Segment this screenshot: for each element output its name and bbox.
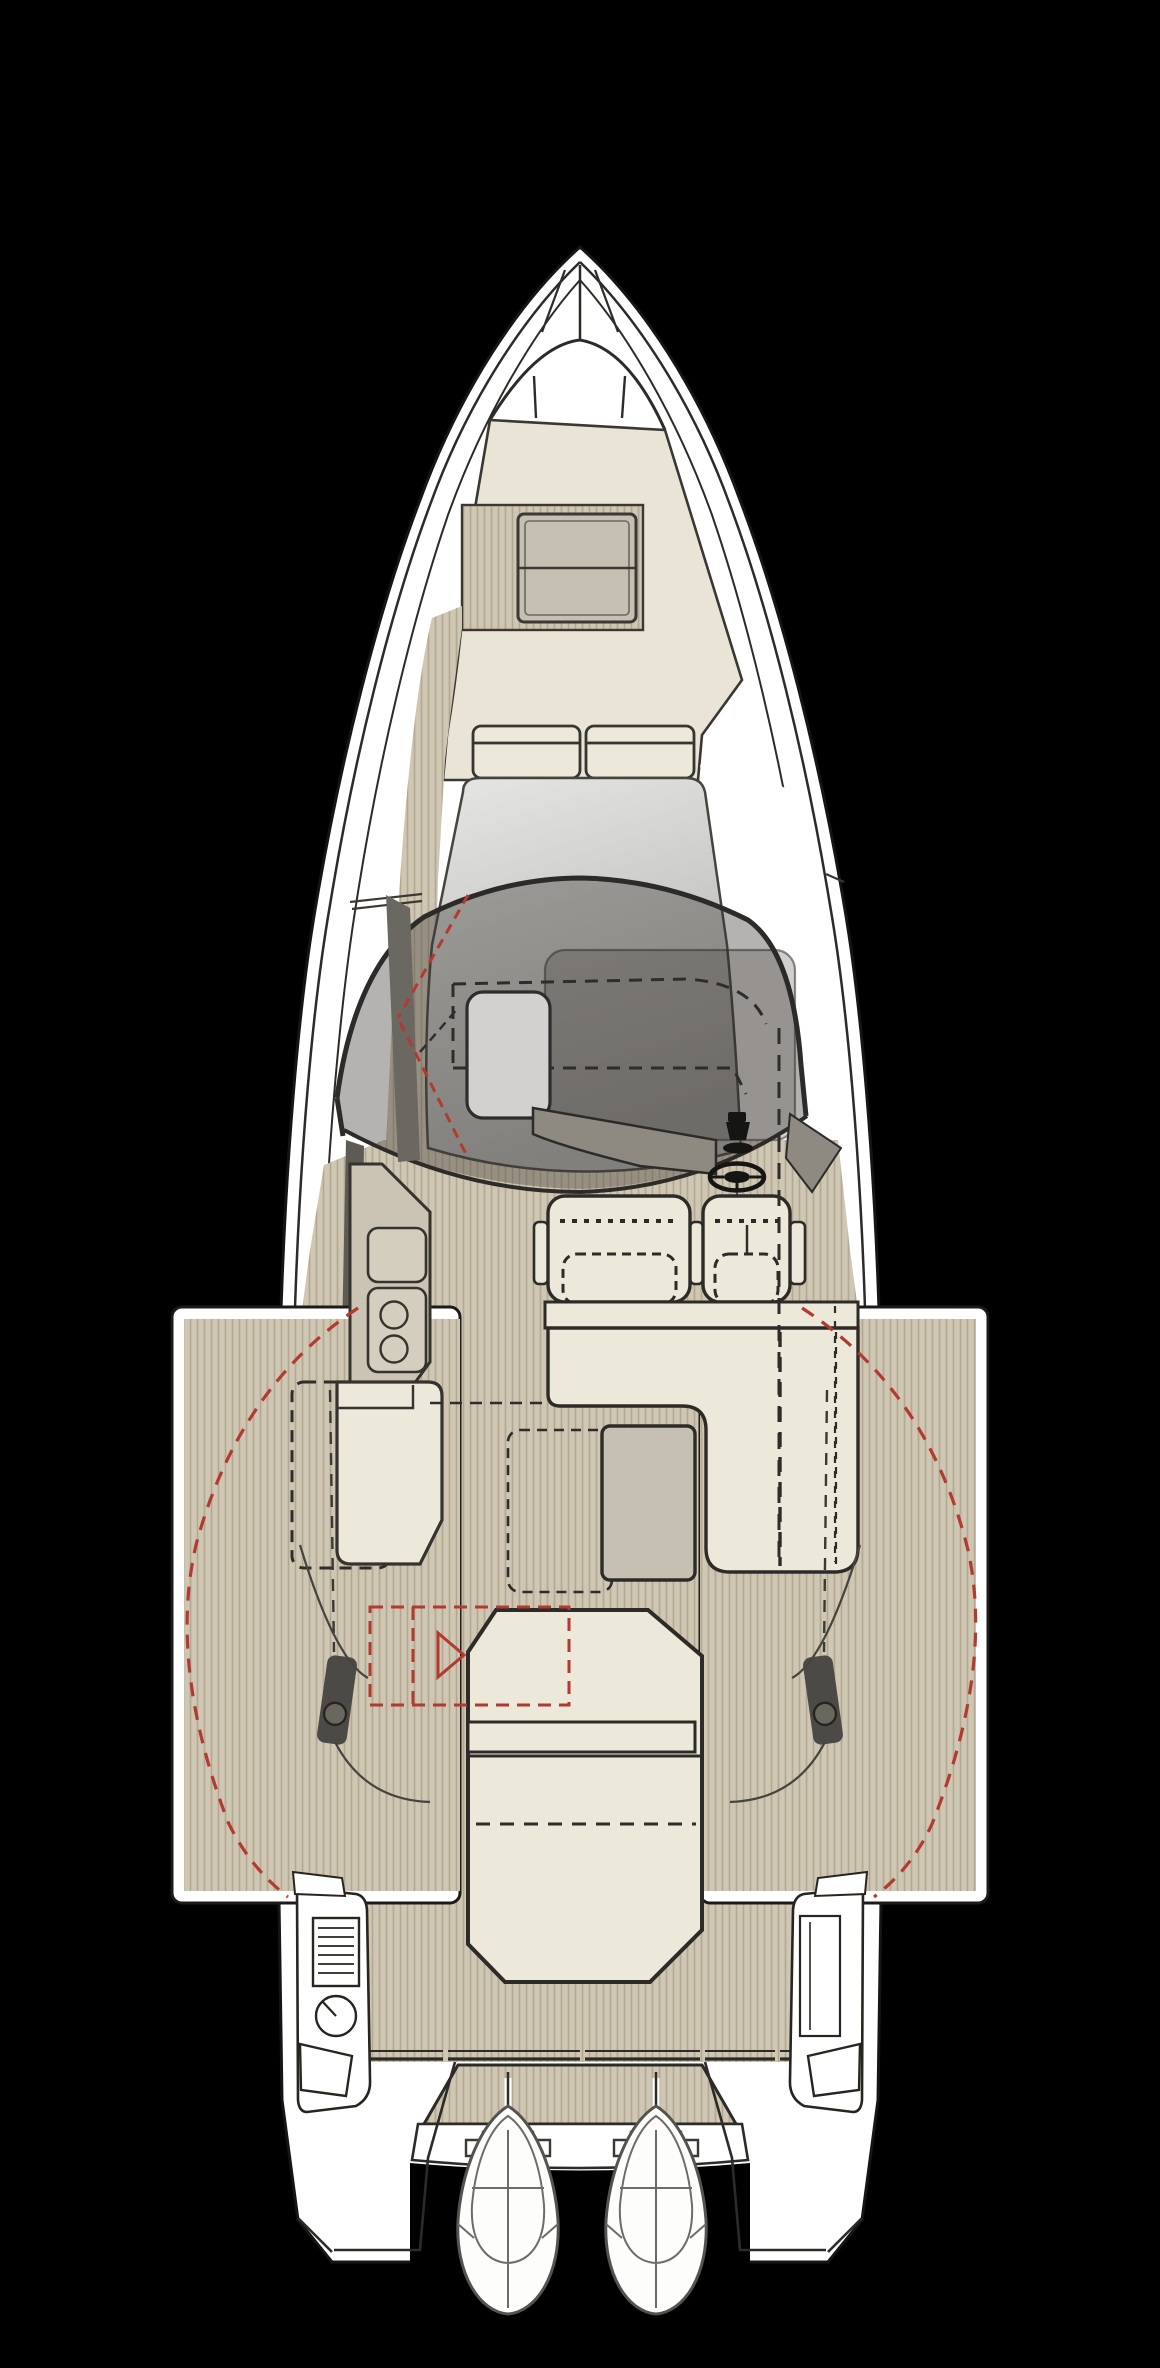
stern-console-port xyxy=(293,1872,370,2112)
helm-seats xyxy=(534,1196,805,1304)
helm-seat-armrest xyxy=(534,1222,548,1284)
companionway-door-pane xyxy=(467,992,550,1118)
swim-platform-center xyxy=(424,2065,736,2124)
aft-sunbed-group xyxy=(468,1610,702,1982)
cockpit-table xyxy=(602,1426,695,1580)
boat-deck-plan xyxy=(0,0,1160,2368)
helm-bench-seat xyxy=(548,1196,690,1302)
galley-stove xyxy=(368,1288,426,1372)
sunbed-backrest-bar xyxy=(468,1722,695,1752)
port-bench-seat xyxy=(337,1382,442,1564)
helm-seat-armrest xyxy=(690,1222,703,1284)
galley-sink xyxy=(368,1228,426,1282)
hardtop-sunroof xyxy=(545,950,795,1140)
aft-sunbed xyxy=(468,1610,702,1982)
boat-deck-plan-stage xyxy=(0,0,1160,2368)
helm-seat-armrest xyxy=(790,1222,805,1284)
stern-locker-panel xyxy=(800,1916,840,2036)
stern-console-starboard xyxy=(790,1872,867,2112)
